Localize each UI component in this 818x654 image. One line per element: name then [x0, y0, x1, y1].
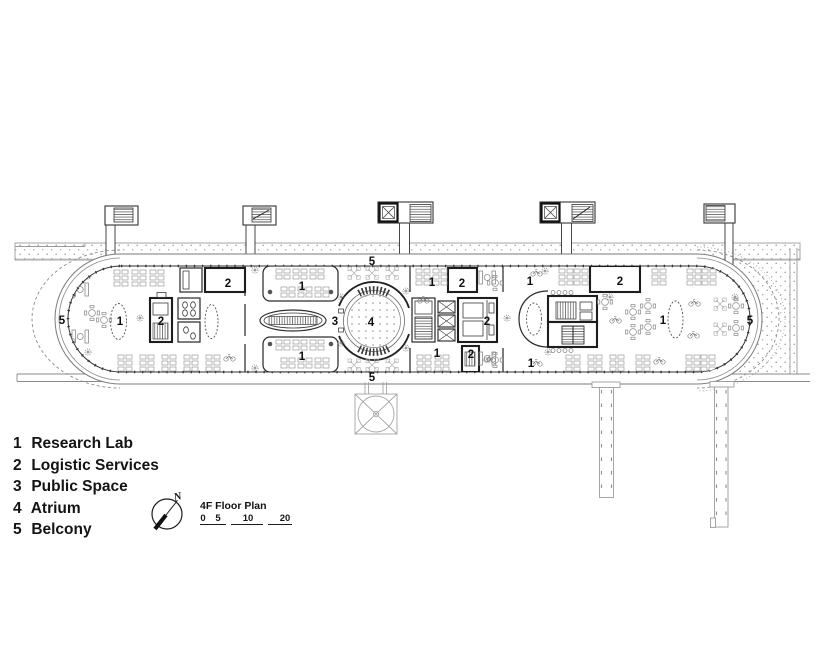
room-label-1: 1: [528, 358, 535, 370]
scale-tick-20: 20: [280, 513, 291, 524]
room-label-5: 5: [747, 315, 754, 327]
room-label-5: 5: [369, 256, 376, 268]
room-label-5: 5: [369, 372, 376, 384]
scale-tick-10: 10: [243, 513, 254, 524]
room-label-1: 1: [299, 351, 306, 363]
room-label-1: 1: [117, 316, 124, 328]
legend-num: 3: [13, 476, 27, 498]
floor-plan-page: 51221134551221211215 N 4F Floor Plan 0 5…: [0, 0, 818, 654]
legend-label: Research Lab: [31, 435, 133, 452]
scale-bar: 4F Floor Plan 0 5 10 20: [200, 500, 292, 525]
scale-tick-5: 5: [215, 513, 221, 524]
room-label-2: 2: [225, 278, 231, 290]
legend-num: 2: [13, 455, 27, 477]
legend-item-atrium: 4 Atrium: [13, 498, 159, 520]
room-label-1: 1: [434, 348, 441, 360]
room-label-5: 5: [59, 315, 66, 327]
public-space-oval: [260, 310, 326, 331]
room-label-3: 3: [332, 316, 338, 328]
room-label-2: 2: [468, 349, 474, 361]
room-label-2: 2: [617, 276, 623, 288]
floor-plan-drawing: 51221134551221211215 N 4F Floor Plan 0 5…: [0, 0, 818, 654]
legend-label: Public Space: [31, 478, 127, 495]
toilet-room: [178, 298, 200, 319]
legend: 1 Research Lab 2 Logistic Services 3 Pub…: [13, 433, 159, 541]
room-label-1: 1: [527, 276, 534, 288]
legend-num: 4: [13, 498, 27, 520]
scale-tick-0: 0: [200, 513, 205, 524]
room-label-1: 1: [299, 281, 306, 293]
ramp-2: [710, 382, 734, 528]
plan-title-text: 4F Floor Plan: [200, 500, 267, 512]
toilet-room: [178, 322, 200, 342]
room-label-2: 2: [158, 316, 164, 328]
legend-item-belcony: 5 Belcony: [13, 519, 159, 541]
room-label-1: 1: [429, 277, 436, 289]
legend-num: 1: [13, 433, 27, 455]
legend-label: Logistic Services: [31, 457, 159, 474]
legend-item-public-space: 3 Public Space: [13, 476, 159, 498]
room-label-4: 4: [368, 317, 375, 329]
room-label-2: 2: [484, 316, 490, 328]
room-label-2: 2: [459, 278, 465, 290]
skylight-detail: [355, 382, 397, 434]
ramp-1: [592, 382, 620, 498]
legend-label: Belcony: [31, 521, 91, 538]
legend-item-research-lab: 1 Research Lab: [13, 433, 159, 455]
legend-item-logistic-services: 2 Logistic Services: [13, 455, 159, 477]
legend-label: Atrium: [31, 500, 81, 517]
legend-num: 5: [13, 519, 27, 541]
room-label-1: 1: [660, 315, 667, 327]
